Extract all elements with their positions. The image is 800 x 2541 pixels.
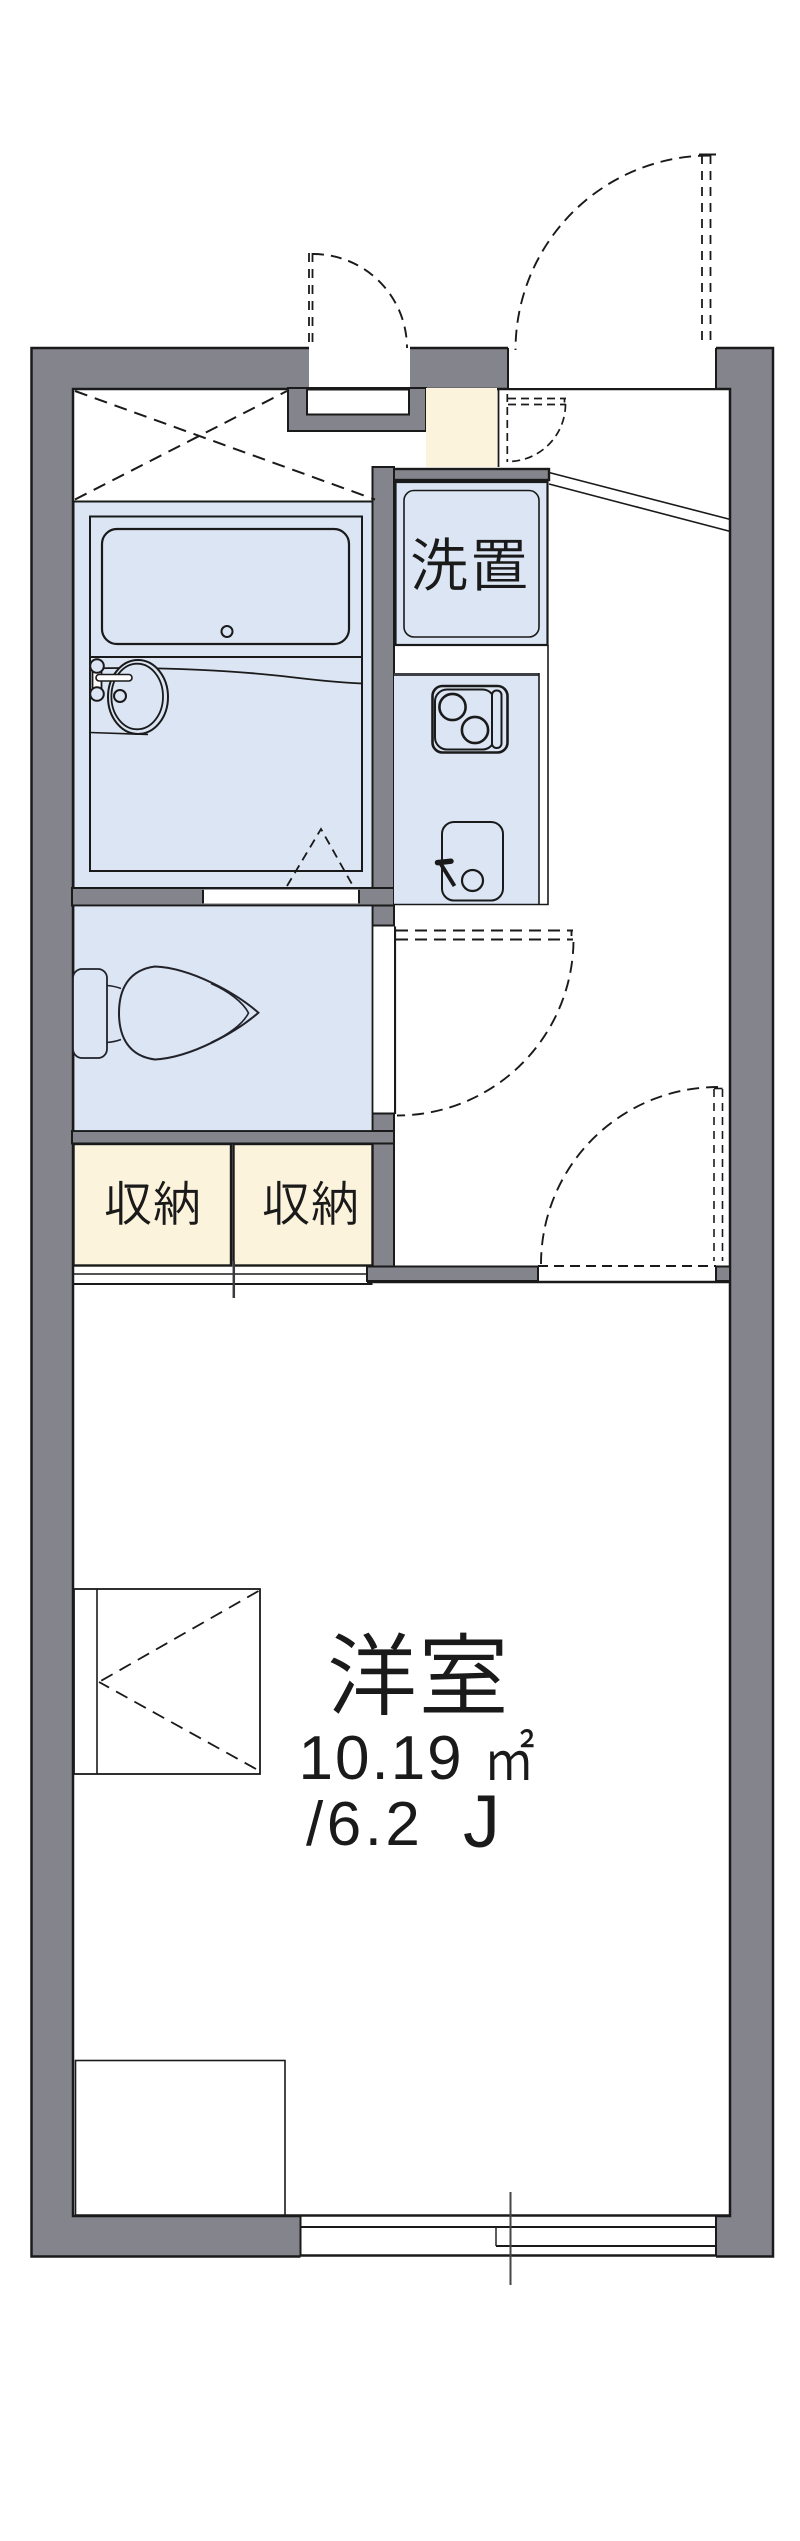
svg-text:10.19: 10.19	[299, 1724, 464, 1793]
svg-text:/6.2: /6.2	[306, 1790, 423, 1859]
svg-text:J: J	[463, 1780, 500, 1863]
